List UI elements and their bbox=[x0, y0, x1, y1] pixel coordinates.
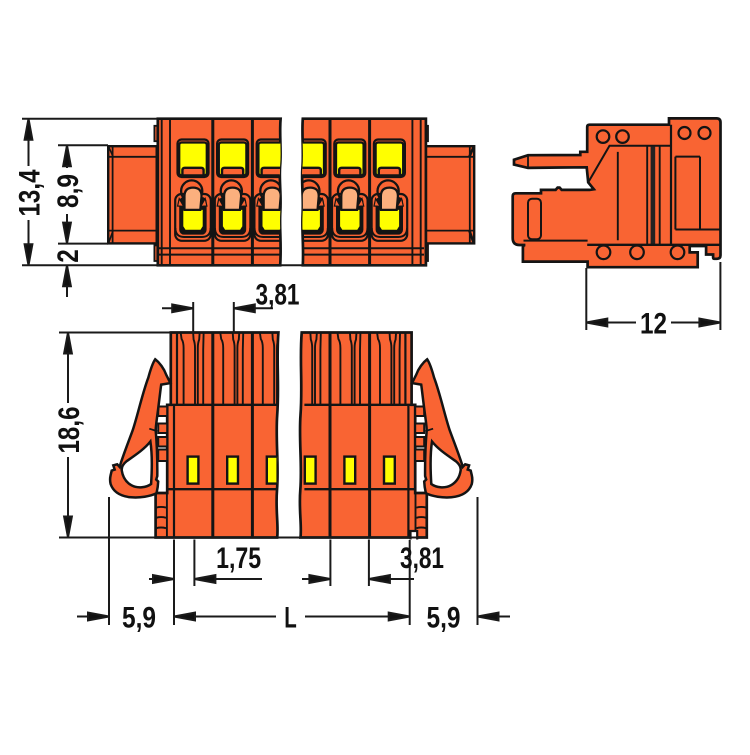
svg-text:5,9: 5,9 bbox=[122, 601, 156, 634]
svg-text:L: L bbox=[284, 601, 297, 634]
svg-text:2: 2 bbox=[52, 249, 85, 263]
svg-text:13,4: 13,4 bbox=[13, 169, 46, 216]
svg-text:12: 12 bbox=[640, 307, 667, 340]
svg-text:18,6: 18,6 bbox=[53, 407, 86, 454]
svg-text:1,75: 1,75 bbox=[216, 542, 261, 575]
svg-text:5,9: 5,9 bbox=[427, 601, 461, 634]
svg-text:8,9: 8,9 bbox=[52, 174, 85, 208]
svg-text:3,81: 3,81 bbox=[400, 542, 444, 575]
svg-text:3,81: 3,81 bbox=[256, 278, 300, 311]
